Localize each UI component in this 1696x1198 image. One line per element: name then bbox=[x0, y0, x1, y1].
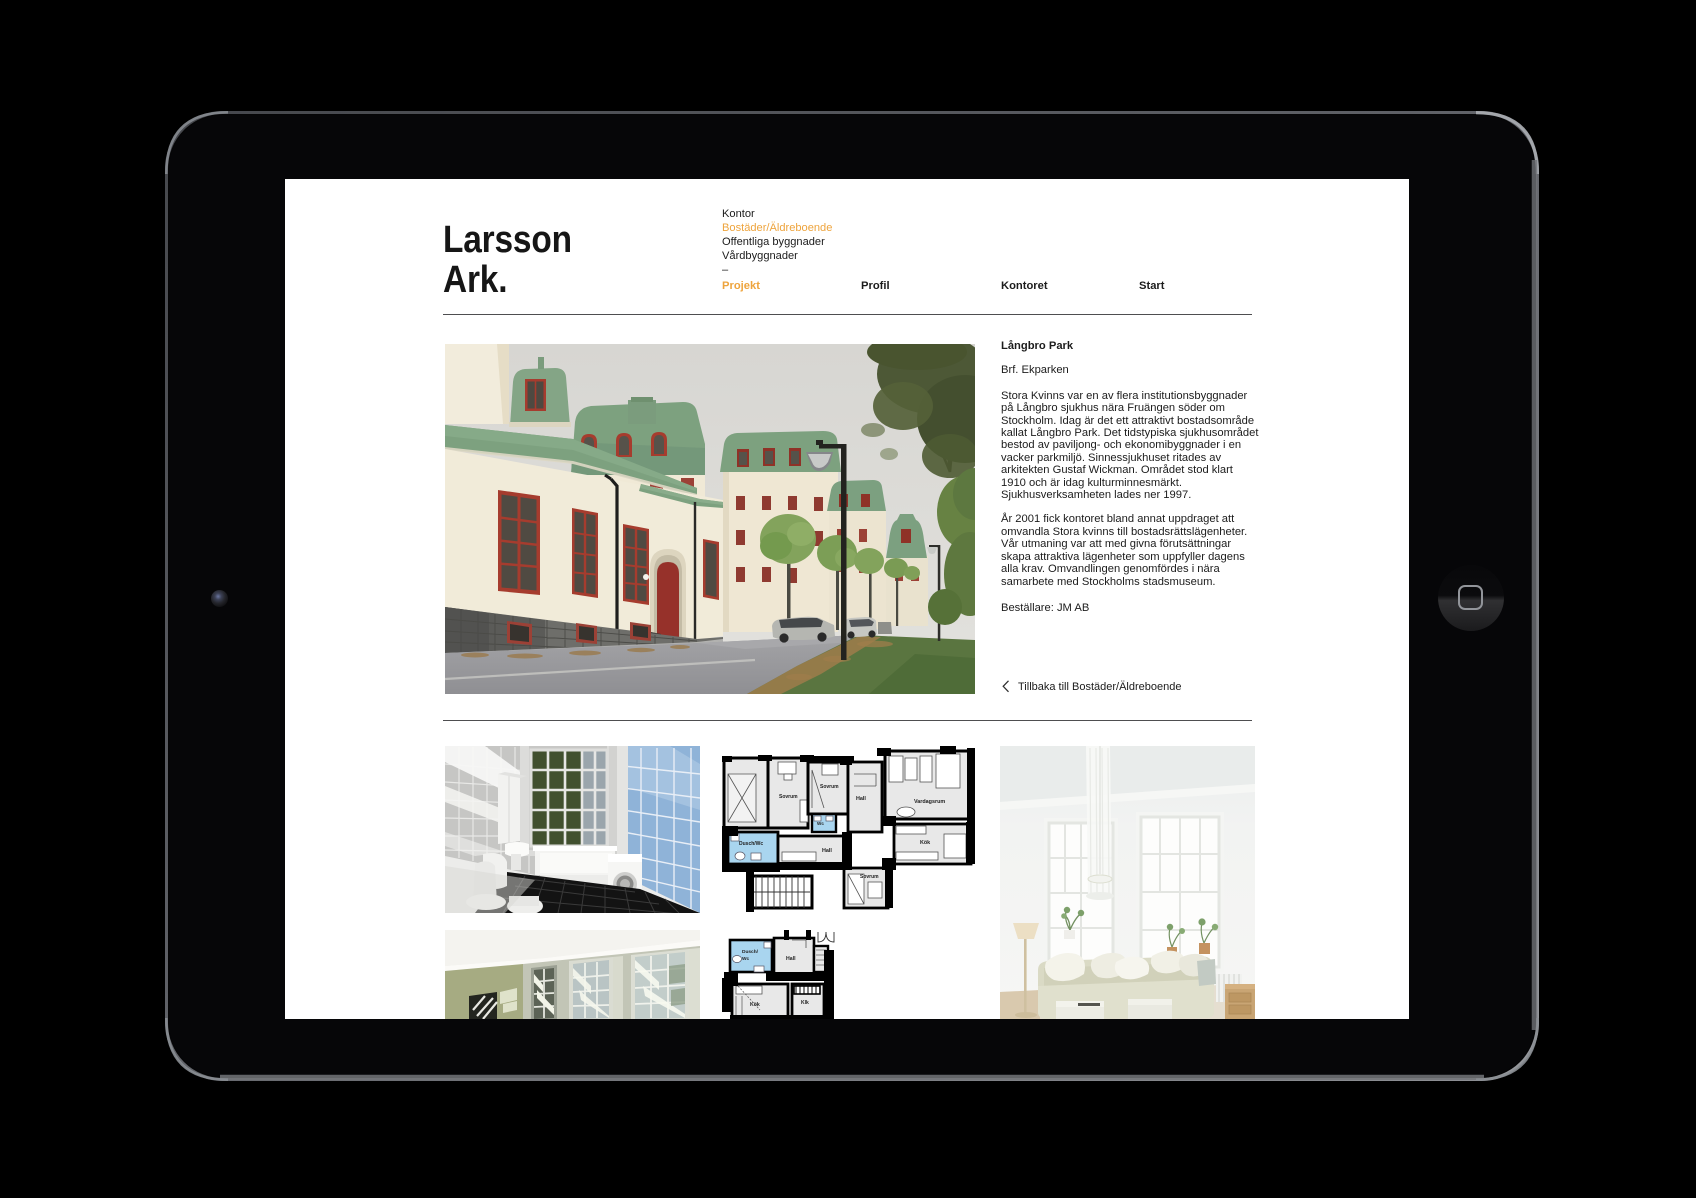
svg-text:Vardagsrum: Vardagsrum bbox=[914, 799, 945, 805]
svg-text:Dusch/: Dusch/ bbox=[742, 949, 759, 955]
svg-text:Wc: Wc bbox=[817, 821, 824, 826]
svg-text:Kök: Kök bbox=[920, 840, 930, 846]
svg-text:Wc: Wc bbox=[742, 956, 750, 962]
svg-text:Dusch/Wc: Dusch/Wc bbox=[739, 841, 763, 847]
svg-text:Hall: Hall bbox=[856, 796, 866, 802]
svg-text:Hall: Hall bbox=[822, 848, 832, 854]
svg-text:Sovrum: Sovrum bbox=[860, 874, 879, 880]
svg-text:Sovrum: Sovrum bbox=[779, 794, 798, 800]
svg-text:Hall: Hall bbox=[786, 956, 796, 962]
svg-text:Klk: Klk bbox=[801, 1000, 809, 1006]
svg-text:Sovrum: Sovrum bbox=[820, 784, 839, 790]
